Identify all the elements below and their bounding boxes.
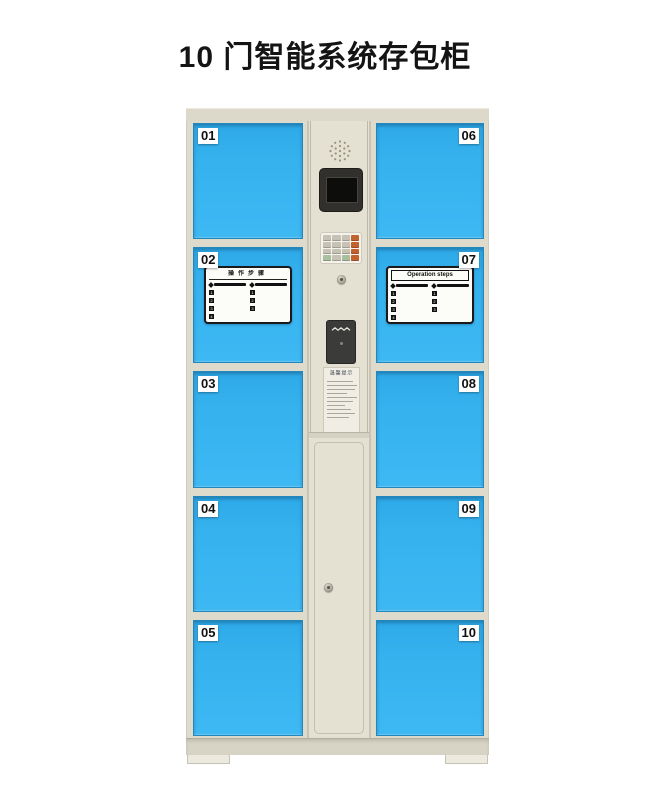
smart-locker-cabinet: 01 02 操作步骤 1 2 3 4 xyxy=(186,108,489,762)
sticker-column-retrieve: 1 2 3 xyxy=(250,282,287,319)
control-panel-column: 温馨提示 xyxy=(307,121,371,738)
locker-door-03: 03 xyxy=(193,371,303,487)
keypad-key xyxy=(351,242,359,248)
diamond-icon xyxy=(208,282,214,288)
center-door-inset-outline xyxy=(314,442,364,734)
step-number-badge: 2 xyxy=(209,298,214,303)
cabinet-base xyxy=(186,738,489,755)
keyhole-lock-icon xyxy=(337,275,346,284)
locker-door-01: 01 xyxy=(193,123,303,239)
sticker-header-bar xyxy=(432,283,469,288)
instruction-sticker-chinese: 操作步骤 1 2 3 4 1 2 3 xyxy=(204,266,292,324)
step-number-badge: 4 xyxy=(391,315,396,320)
keypad-key xyxy=(351,255,359,261)
scanner-dot xyxy=(340,342,343,345)
door-number-tag: 04 xyxy=(198,501,218,517)
keypad-key xyxy=(342,255,350,261)
center-service-door xyxy=(310,438,368,738)
keypad-key xyxy=(342,249,350,255)
sticker-header-bar xyxy=(391,283,428,288)
door-number-tag: 07 xyxy=(459,252,479,268)
diamond-icon xyxy=(249,282,255,288)
step-number-badge: 1 xyxy=(250,290,255,295)
locker-door-07: 07 Operation steps 1 2 3 4 1 xyxy=(376,247,484,363)
notice-label: 温馨提示 xyxy=(323,367,360,433)
sticker-header-bar xyxy=(250,282,287,287)
door-column-left: 01 02 操作步骤 1 2 3 4 xyxy=(193,123,303,736)
sticker-header-bar xyxy=(209,282,246,287)
door-column-right: 06 07 Operation steps 1 2 3 4 xyxy=(376,123,484,736)
step-number-badge: 2 xyxy=(391,299,396,304)
locker-door-04: 04 xyxy=(193,496,303,612)
keypad-key xyxy=(351,249,359,255)
instruction-sticker-english: Operation steps 1 2 3 4 1 2 xyxy=(386,266,474,324)
keypad-key xyxy=(351,235,359,241)
display-screen xyxy=(319,168,363,212)
door-number-tag: 01 xyxy=(198,128,218,144)
door-number-tag: 05 xyxy=(198,625,218,641)
diamond-icon xyxy=(390,283,396,289)
step-number-badge: 1 xyxy=(391,291,396,296)
speaker-grill-icon xyxy=(326,137,354,170)
cabinet-body: 01 02 操作步骤 1 2 3 4 xyxy=(186,121,489,738)
diamond-icon xyxy=(431,283,437,289)
keypad-key xyxy=(332,255,340,261)
locker-door-09: 09 xyxy=(376,496,484,612)
sticker-title: Operation steps xyxy=(391,270,469,281)
step-number-badge: 1 xyxy=(209,290,214,295)
page-title: 10 门智能系统存包柜 xyxy=(0,32,650,76)
locker-door-10: 10 xyxy=(376,620,484,736)
keypad xyxy=(321,233,361,263)
locker-door-06: 06 xyxy=(376,123,484,239)
keypad-key xyxy=(323,255,331,261)
keyhole-lock-icon xyxy=(324,583,333,592)
keypad-key xyxy=(323,235,331,241)
door-number-tag: 09 xyxy=(459,501,479,517)
sticker-title: 操作步骤 xyxy=(209,270,287,280)
step-number-badge: 3 xyxy=(432,307,437,312)
locker-door-05: 05 xyxy=(193,620,303,736)
locker-door-08: 08 xyxy=(376,371,484,487)
door-number-tag: 10 xyxy=(459,625,479,641)
door-number-tag: 08 xyxy=(459,376,479,392)
notice-title: 温馨提示 xyxy=(329,371,354,377)
keypad-key xyxy=(332,242,340,248)
wave-icon xyxy=(331,326,351,332)
sticker-column-store: 1 2 3 4 xyxy=(209,282,246,319)
cabinet-top-panel xyxy=(186,108,489,122)
screen-glass xyxy=(326,177,358,203)
keypad-key xyxy=(323,242,331,248)
step-number-badge: 4 xyxy=(209,314,214,319)
step-number-badge: 2 xyxy=(250,298,255,303)
step-number-badge: 1 xyxy=(432,291,437,296)
step-number-badge: 3 xyxy=(209,306,214,311)
keypad-key xyxy=(342,235,350,241)
step-number-badge: 3 xyxy=(250,306,255,311)
scanner-window xyxy=(326,320,356,364)
step-number-badge: 2 xyxy=(432,299,437,304)
keypad-key xyxy=(332,249,340,255)
door-number-tag: 03 xyxy=(198,376,218,392)
sticker-column-store: 1 2 3 4 xyxy=(391,283,428,320)
keypad-key xyxy=(342,242,350,248)
step-number-badge: 3 xyxy=(391,307,396,312)
door-number-tag: 02 xyxy=(198,252,218,268)
keypad-key xyxy=(332,235,340,241)
door-number-tag: 06 xyxy=(459,128,479,144)
keypad-key xyxy=(323,249,331,255)
locker-door-02: 02 操作步骤 1 2 3 4 1 xyxy=(193,247,303,363)
sticker-column-retrieve: 1 2 3 xyxy=(432,283,469,320)
